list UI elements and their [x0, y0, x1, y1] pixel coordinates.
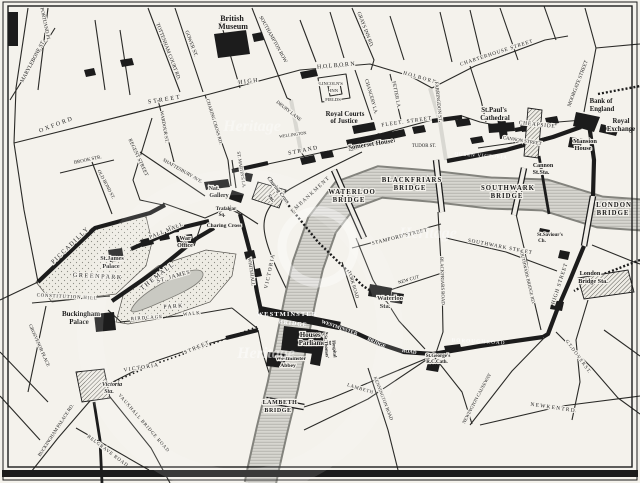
map-label: INN [330, 88, 339, 93]
map-label: London [580, 270, 601, 277]
map-label: Office [177, 243, 193, 249]
map-label: House [574, 145, 591, 152]
map-label: Mansion [573, 138, 597, 145]
map-label: BRIDGE [264, 408, 291, 414]
building [8, 12, 18, 46]
watermark-text: Heritage [222, 118, 281, 135]
map-label: LONDON [596, 202, 632, 209]
map-label: SOUTHWARK [481, 185, 535, 192]
map-label: WATERLOO [328, 189, 376, 196]
map-label: St.George's [426, 354, 451, 359]
watermark-text: Heritage [398, 225, 457, 242]
map-label: Trafalgar [216, 207, 237, 212]
map-label: TUDOR ST. [412, 144, 436, 149]
map-label: War [179, 236, 191, 242]
map-label: St.Paul's [481, 107, 507, 114]
map-label: Ch. [538, 239, 546, 244]
map-label: of Justice [330, 118, 357, 125]
map-label: BLACKFRIARS [382, 177, 442, 184]
map-label: FIELDS [325, 97, 341, 102]
map-label: LAMBETH [263, 400, 298, 406]
map-label: Bank of [590, 98, 614, 105]
map-label: England [590, 106, 615, 113]
map-label: Charing Cross [207, 223, 243, 229]
map-label: BRIDGE [597, 210, 630, 217]
map-label: Bridge Sta. [578, 278, 608, 285]
map-label: R.C.Cath. [426, 360, 448, 365]
map-label: Royal Courts [326, 111, 365, 118]
map-canvas: BritishMuseumPORTLAND PL.MARYLEBONE ST.O… [0, 0, 640, 483]
map-label: Exchange [607, 126, 635, 133]
map-label: St.Saviour's [537, 233, 563, 238]
map-label: LINCOLN'S [319, 81, 343, 86]
map-label: Sq. [219, 213, 227, 218]
map-label: Abbey [280, 363, 296, 369]
map-label: Cannon [533, 163, 554, 169]
map-label: Museum [218, 22, 248, 31]
watermark-text: Heritage [236, 345, 295, 362]
map-label: Cathedral [480, 115, 510, 122]
map-label: BRIDGE [491, 193, 524, 200]
map-label: Royal [613, 118, 630, 125]
london-map: BritishMuseumPORTLAND PL.MARYLEBONE ST.O… [0, 0, 640, 483]
building [214, 30, 250, 58]
map-label: BRIDGE [394, 185, 427, 192]
map-label: WESTMINSTER [257, 311, 318, 318]
map-label: St.Sta. [533, 170, 550, 176]
